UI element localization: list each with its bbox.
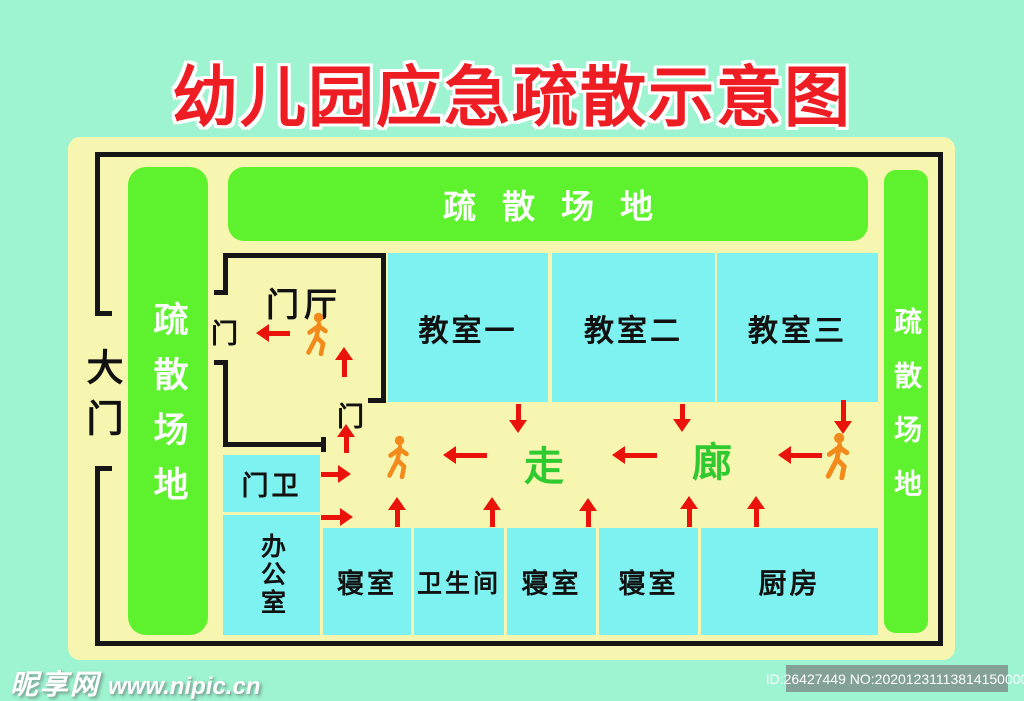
wall-left-upper [95, 152, 100, 316]
page-title: 幼儿园应急疏散示意图 [0, 44, 1024, 140]
evacuation-arrow-left-9 [778, 446, 822, 464]
hall-wall-right [381, 253, 386, 400]
room-label-kitchen: 厨房 [758, 562, 820, 602]
room-label-classroom-2: 教室二 [584, 306, 683, 350]
room-label-bathroom: 卫生间 [417, 564, 501, 600]
wall-top [95, 152, 943, 157]
watermark-site-url: www.nipic.cn [108, 673, 260, 700]
room-label-dorm-1: 寝室 [337, 562, 397, 601]
walking-person-icon-1 [302, 312, 332, 361]
room-label-guard-room: 门卫 [242, 464, 302, 503]
hall-door-jamb-bottom [321, 437, 326, 452]
room-classroom-1: 教室一 [388, 253, 548, 402]
watermark: 昵享网www.nipic.cn [10, 663, 260, 701]
room-kitchen: 厨房 [701, 528, 878, 635]
evacuation-arrow-up-14 [747, 496, 765, 527]
room-dorm-2: 寝室 [507, 528, 596, 635]
evacuation-arrow-up-12 [579, 498, 597, 527]
door-label-1: 门 [211, 312, 238, 351]
hall-door-jamb-left-2 [214, 360, 228, 365]
wall-bottom [95, 641, 943, 646]
evacuation-arrow-down-6 [834, 400, 852, 434]
room-guard-room: 门卫 [223, 455, 320, 512]
walking-person-icon-2 [383, 435, 413, 484]
evacuation-arrow-right-16 [321, 508, 353, 526]
room-label-dorm-2: 寝室 [522, 562, 582, 601]
evacuation-arrow-up-13 [680, 496, 698, 527]
evacuation-arrow-left-7 [443, 446, 487, 464]
hall-wall-bottom [223, 442, 326, 447]
main-gate-label: 大门 [74, 348, 128, 450]
evacuation-arrow-left-1 [256, 324, 290, 342]
gate-jamb-lower [95, 466, 112, 471]
room-dorm-3: 寝室 [599, 528, 698, 635]
room-label-office: 办公室 [254, 533, 290, 617]
evacuation-arrow-right-15 [321, 465, 351, 483]
evacuation-arrow-up-10 [388, 497, 406, 527]
evacuation-arrow-down-4 [509, 404, 527, 433]
evacuation-poster: 幼儿园应急疏散示意图 疏散场地 疏散场地 疏散场地 大门 门厅 走 廊 昵享网w… [0, 0, 1024, 701]
room-classroom-2: 教室二 [552, 253, 715, 402]
evacuation-area-top: 疏散场地 [228, 167, 868, 241]
hall-wall-top [223, 253, 386, 258]
hall-door-jamb-right [368, 398, 386, 403]
room-office: 办公室 [223, 515, 320, 635]
watermark-site-name: 昵享网 [10, 669, 100, 700]
evacuation-arrow-up-2 [335, 347, 353, 377]
evacuation-arrow-left-8 [612, 446, 657, 464]
room-label-classroom-3: 教室三 [748, 306, 847, 350]
evacuation-arrow-up-3 [337, 424, 355, 453]
corridor-label-lang: 廊 [692, 430, 732, 488]
hall-door-jamb-left-1 [214, 290, 228, 295]
evacuation-area-right: 疏散场地 [884, 170, 928, 633]
walking-person-icon-3 [821, 432, 854, 485]
gate-jamb-upper [95, 311, 112, 316]
room-label-classroom-1: 教室一 [419, 306, 518, 350]
image-id-badge: ID:26427449 NO:20201231113814150000 [786, 665, 1008, 692]
room-dorm-1: 寝室 [323, 528, 411, 635]
wall-left-lower [95, 466, 100, 646]
evacuation-arrow-up-11 [483, 497, 501, 527]
wall-right [938, 152, 943, 646]
room-bathroom: 卫生间 [414, 528, 504, 635]
evacuation-area-left: 疏散场地 [128, 167, 208, 635]
hall-wall-left-upper [223, 253, 228, 295]
room-label-dorm-3: 寝室 [619, 562, 679, 601]
evacuation-arrow-down-5 [673, 404, 691, 432]
hall-wall-left-lower [223, 360, 228, 447]
corridor-label-zou: 走 [524, 434, 564, 492]
room-classroom-3: 教室三 [717, 253, 878, 402]
